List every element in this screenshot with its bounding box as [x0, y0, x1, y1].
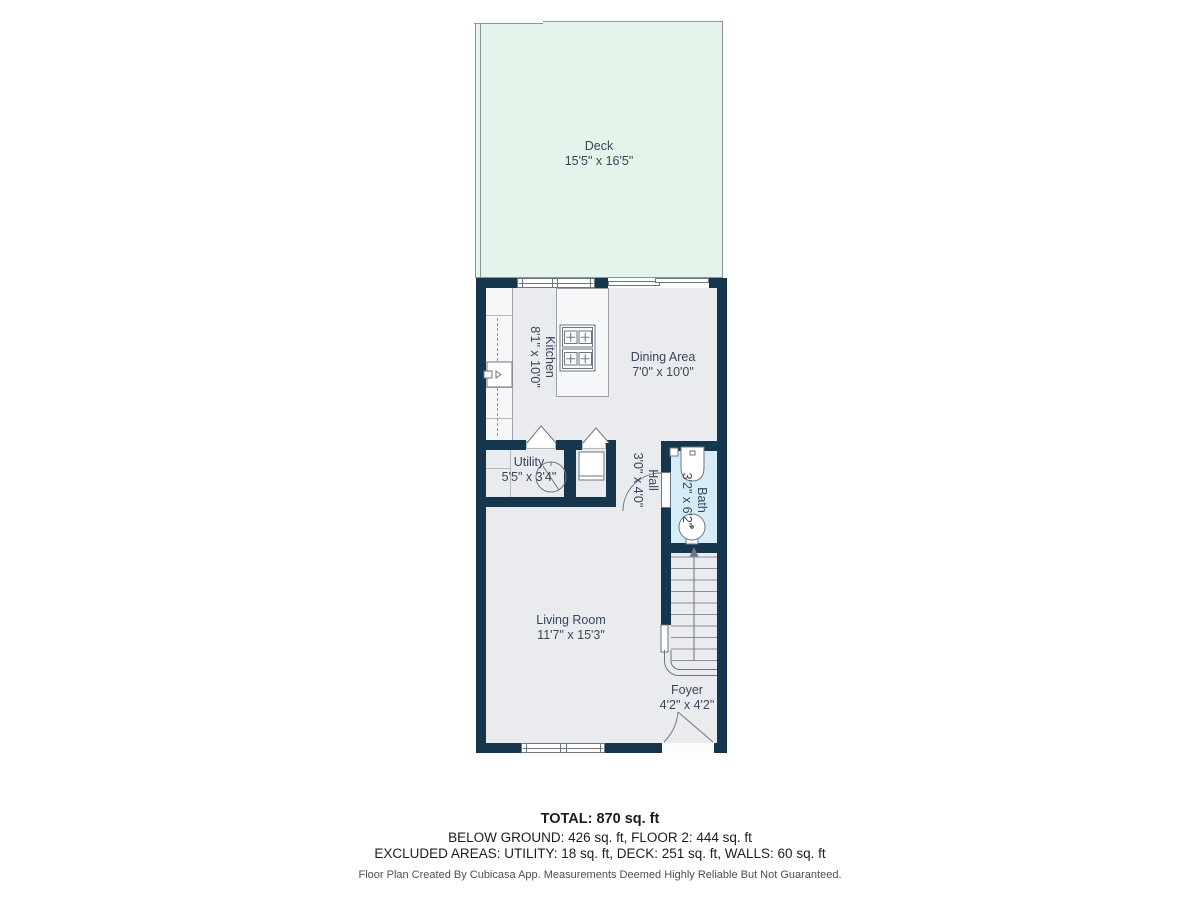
room-dims: 3'0" x 4'0": [630, 453, 645, 508]
room-label-bath: Bath 3'2" x 6'2": [679, 473, 709, 528]
room-label-utility: Utility 5'5" x 3'4": [502, 455, 557, 485]
entry-door-icon: [664, 712, 713, 742]
room-label-dining: Dining Area 7'0" x 10'0": [631, 350, 696, 380]
room-label-deck: Deck 15'5" x 16'5": [565, 139, 634, 169]
summary-floors: BELOW GROUND: 426 sq. ft, FLOOR 2: 444 s…: [0, 830, 1200, 845]
room-name: Hall: [645, 453, 660, 508]
room-name: Deck: [565, 139, 634, 154]
room-dims: 5'5" x 3'4": [502, 470, 557, 485]
room-dims: 7'0" x 10'0": [631, 365, 696, 380]
room-name: Foyer: [660, 683, 715, 698]
room-label-living: Living Room 11'7" x 15'3": [536, 613, 605, 643]
fixtures-layer: [0, 0, 1200, 900]
room-dims: 15'5" x 16'5": [565, 154, 634, 169]
door-swing-icon: [583, 428, 609, 443]
summary-excluded: EXCLUDED AREAS: UTILITY: 18 sq. ft, DECK…: [0, 846, 1200, 861]
room-dims: 11'7" x 15'3": [536, 628, 605, 643]
summary-disclaimer: Floor Plan Created By Cubicasa App. Meas…: [0, 869, 1200, 881]
room-label-hall: Hall 3'0" x 4'0": [630, 453, 660, 508]
room-label-kitchen: Kitchen 8'1" x 10'0": [527, 326, 557, 388]
room-dims: 4'2" x 4'2": [660, 698, 715, 713]
room-dims: 8'1" x 10'0": [527, 326, 542, 388]
stairs-direction-arrow-icon: [690, 547, 699, 661]
room-label-foyer: Foyer 4'2" x 4'2": [660, 683, 715, 713]
room-name: Utility: [502, 455, 557, 470]
room-name: Dining Area: [631, 350, 696, 365]
stove-icon: [560, 325, 595, 371]
stairs-railing: [661, 625, 668, 652]
room-dims: 3'2" x 6'2": [679, 473, 694, 528]
stairs: [661, 547, 717, 676]
room-name: Living Room: [536, 613, 605, 628]
summary-total: TOTAL: 870 sq. ft: [0, 811, 1200, 827]
floor-plan: Deck 15'5" x 16'5" Kitchen 8'1" x 10'0" …: [0, 0, 1200, 900]
stairs-railing-curve: [665, 650, 718, 676]
room-name: Kitchen: [542, 326, 557, 388]
kitchen-sink-icon: [484, 362, 512, 387]
door-swing-icon: [527, 426, 556, 443]
closet-shelf-icon: [579, 452, 604, 480]
room-name: Bath: [694, 473, 709, 528]
